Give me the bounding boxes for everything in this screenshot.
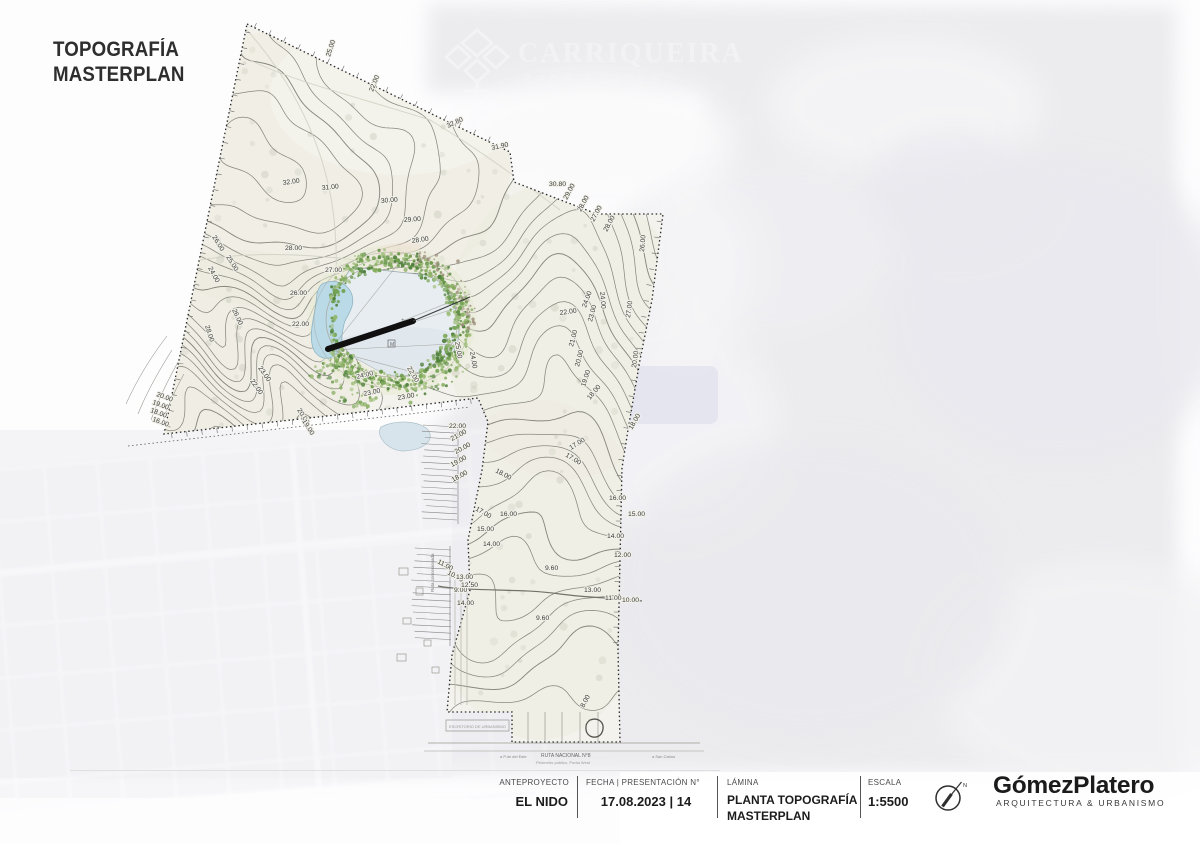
svg-text:12.50: 12.50 <box>461 582 478 589</box>
svg-text:9.60: 9.60 <box>545 565 558 572</box>
svg-text:9.60: 9.60 <box>536 615 549 622</box>
svg-text:16.00: 16.00 <box>609 495 626 502</box>
svg-text:11.00: 11.00 <box>605 595 622 602</box>
svg-text:PROPIEDADES: PROPIEDADES <box>524 74 664 86</box>
svg-text:Périmetro público, Punta West: Périmetro público, Punta West <box>536 760 591 765</box>
svg-text:13.00: 13.00 <box>584 587 601 594</box>
svg-text:N: N <box>963 783 967 789</box>
svg-text:26.00: 26.00 <box>290 290 307 297</box>
svg-text:15.00: 15.00 <box>628 511 645 518</box>
svg-text:M: M <box>390 342 394 348</box>
svg-text:Ruta concesionada: Ruta concesionada <box>430 553 435 592</box>
svg-text:a San Carlos: a San Carlos <box>652 754 675 759</box>
svg-text:16.00: 16.00 <box>500 511 517 518</box>
svg-text:ESCRITORIO DE URBANISMO: ESCRITORIO DE URBANISMO <box>449 724 506 729</box>
svg-text:13.00: 13.00 <box>456 574 473 581</box>
svg-text:a P.de del Este: a P.de del Este <box>500 754 527 759</box>
svg-text:29.00: 29.00 <box>404 216 422 224</box>
svg-text:30.80: 30.80 <box>549 181 566 188</box>
svg-text:24.00: 24.00 <box>598 292 606 310</box>
svg-text:15.00: 15.00 <box>477 526 494 533</box>
svg-text:14.00: 14.00 <box>457 600 474 607</box>
svg-text:27.00: 27.00 <box>325 267 342 274</box>
svg-text:10.00: 10.00 <box>622 597 639 604</box>
svg-text:22.00: 22.00 <box>292 321 309 328</box>
svg-text:+: + <box>401 318 405 324</box>
svg-text:14.00: 14.00 <box>607 533 624 540</box>
svg-text:14.00: 14.00 <box>483 541 500 548</box>
svg-text:CARRIQUEIRA: CARRIQUEIRA <box>518 38 744 69</box>
svg-text:30.00: 30.00 <box>381 197 399 205</box>
svg-text:RUTA NACIONAL N°8: RUTA NACIONAL N°8 <box>541 753 591 759</box>
svg-text:26.00: 26.00 <box>639 234 647 252</box>
svg-text:12.00: 12.00 <box>614 552 631 559</box>
svg-text:28.00: 28.00 <box>285 245 302 252</box>
